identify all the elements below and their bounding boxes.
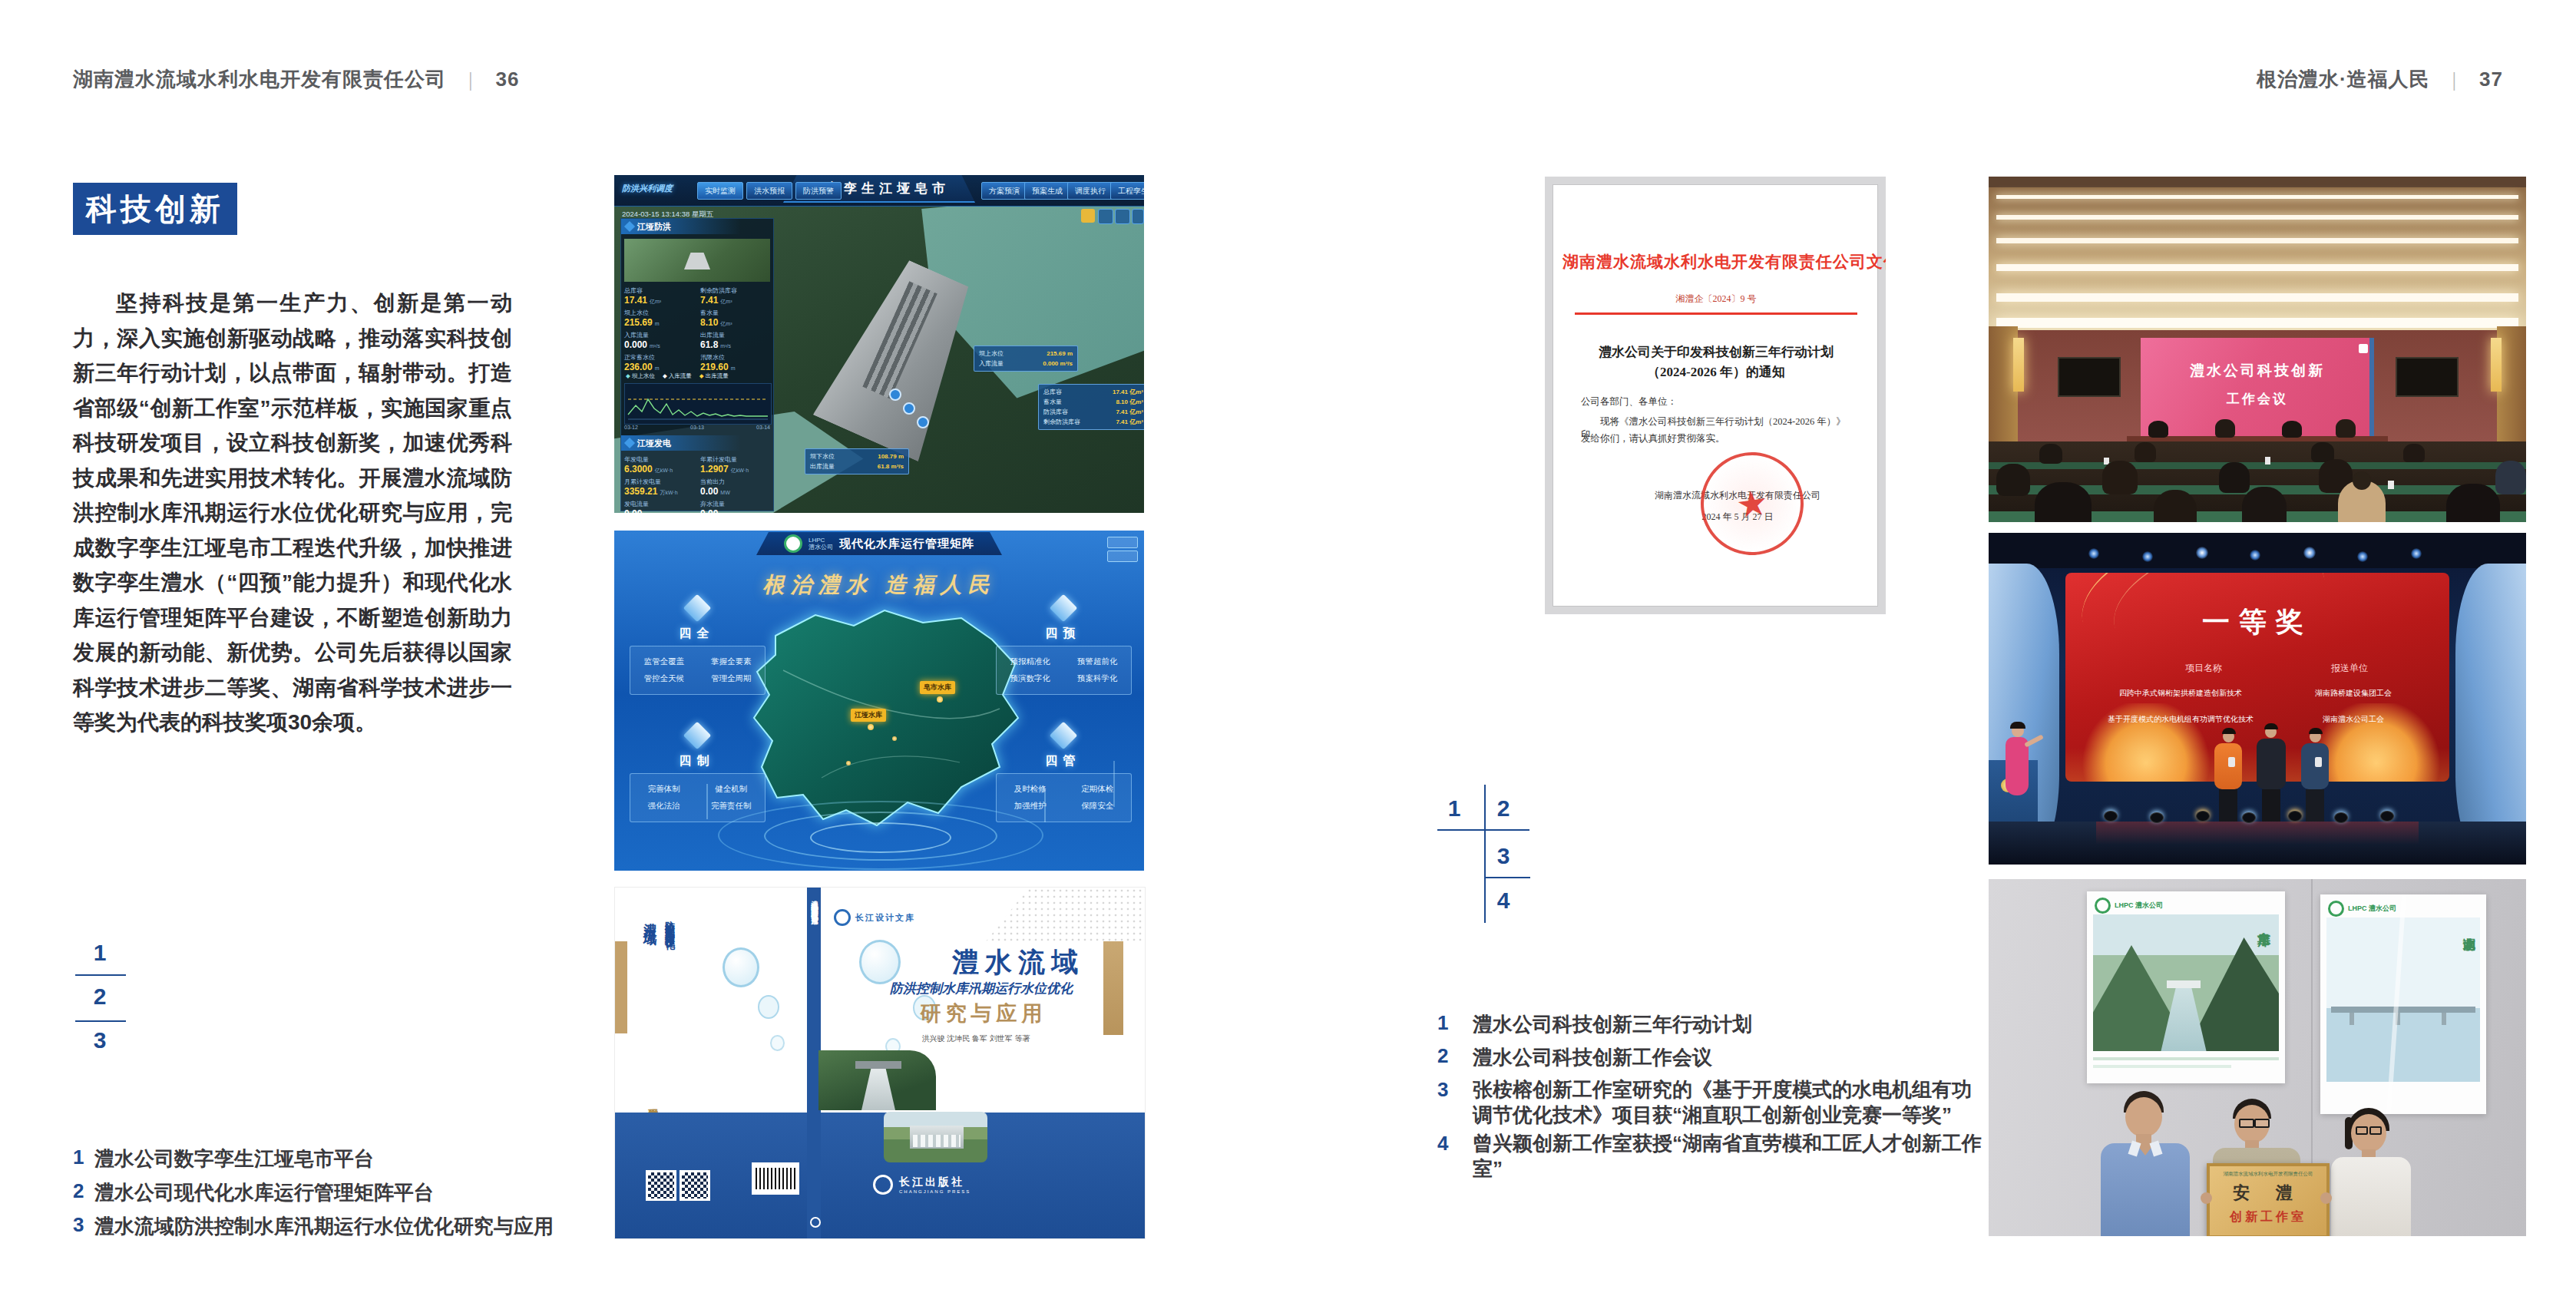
award-title: 一等奖 [2065,603,2449,641]
inset-dam [684,253,710,269]
stage-light-fixture [2380,811,2394,822]
stat-cell: 剩余防洪库容7.41亿m³ [697,285,773,307]
caption-number: 2 [1437,1044,1459,1071]
stat-cell: 年发电量6.3000亿kW·h [621,454,697,476]
winner-hair [2222,728,2236,734]
brochure-spread: 湖南澧水流域水利水电开发有限责任公司 ｜ 36 根治澧水·造福人民 ｜ 37 科… [0,0,2576,1306]
figure-index-3: 3 [1486,843,1520,869]
stat-value: 219.60 [700,362,729,372]
barcode-bars [756,1168,795,1189]
stat-cell: 弃水流量0.00m³/s [697,498,773,513]
innovation-plaque: 湖南澧水流域水利水电开发有限责任公司 安 澧 创新工作室 [2207,1163,2330,1236]
power-panel-header: 江垭发电 [621,435,741,451]
meeting-screen-line1: 澧水公司科技创新 [2141,361,2374,381]
tab-dispatch-execution: 调度执行 [1067,182,1113,200]
award-org-2: 湖南澧水公司工会 [2296,714,2411,725]
attendee-silhouette [2035,482,2092,522]
ceiling [1989,187,2526,330]
presenter-suit [2257,739,2286,789]
publisher-name-en: CHANGJIANG PRESS [899,1189,971,1194]
locate-icon [1115,209,1130,224]
stat-value: 0.00 [700,486,718,497]
panel-item: 管控全天候 [644,673,685,684]
halftone-pattern [984,888,1145,944]
stat-value: 215.69 [624,317,653,328]
stage-light-fixture [2288,811,2302,822]
spotlight [2357,551,2368,562]
figure-index-rule [1484,877,1530,878]
stat-value: 236.00 [624,362,653,372]
stat-cell: 出库流量61.8m³/s [697,329,773,352]
photo-award-ceremony: 一等奖 项目名称 报送单位 四跨中承式钢桁架拱桥建造创新技术 湖南路桥建设集团工… [1989,533,2526,865]
stat-cell: 蓄水量8.10亿m³ [697,307,773,329]
water-bottle [2265,457,2270,465]
water-droplet [723,947,759,987]
photo-official-document: 湖南澧水流域水利水电开发有限责任公司文件 湘澧企〔2024〕9 号 澧水公司关于… [1545,177,1886,614]
wall-sconce-light [2491,338,2502,392]
menu-button [1107,551,1138,562]
man2-right-hand [2320,1192,2332,1204]
qr-code [680,1170,710,1201]
figure-index-1: 1 [83,940,117,966]
matrix-header: LHPC澧水公司 现代化水库运行管理矩阵 [756,532,1002,555]
siquan-panel: 监管全覆盖 掌握全要素 管控全天候 管理全周期 [630,646,766,695]
attendee-silhouette [2102,461,2138,494]
stat-value: 7.41 [700,295,718,306]
x-tick: 03-13 [690,425,704,430]
panelist-silhouette [2336,419,2356,438]
panel-item: 完善体制 [648,784,680,795]
caption-number: 2 [73,1179,94,1206]
seal-star-icon: ★ [1734,481,1771,526]
lhpc-logo-icon [784,534,802,553]
stat-value: 0.000 [624,339,647,350]
panel-item: 预报精准化 [1010,656,1051,667]
award-col-org: 报送单位 [2296,662,2403,675]
caption-number: 3 [1437,1077,1459,1128]
stat-label: 发电流量 [624,500,694,508]
award-col-project: 项目名称 [2150,662,2257,675]
ceiling-light-strip [1996,238,2518,243]
stat-label: 弃水流量 [700,500,770,508]
caption-text: 澧水公司数字孪生江垭皂市平台 [94,1146,374,1172]
lhpc-logo-icon [2095,898,2111,914]
stage-light-fixture [2242,812,2256,823]
window-button [1107,537,1138,548]
tooltip-upstream: 坝上水位215.69 m 入库流量0.000 m³/s [974,346,1078,372]
photo-digital-twin-platform: 数字孪生江垭皂市 防洪兴利调度 实时监测 洪水预报 防洪预警 方案预演 预案生成… [614,175,1144,513]
gate-marker-dot [917,416,929,428]
panel-item: 预警超前化 [1077,656,1118,667]
water-level-chart [624,383,772,425]
spotlight [2142,551,2153,562]
figure-index-3: 3 [83,1027,117,1053]
plaque-subtitle: 创新工作室 [2210,1209,2326,1225]
panelist-silhouette [2215,419,2235,438]
company-name: 湖南澧水流域水利水电开发有限责任公司 [73,66,446,93]
stage-light-fixture [2150,812,2164,823]
stat-unit: m³/s [720,343,731,349]
chart-svg [625,384,771,424]
figure-index-rule [1437,829,1529,831]
stat-unit: m [655,365,660,371]
caption-row: 2 澧水公司科技创新工作会议 [1437,1044,1712,1071]
poster-left: LHPC 澧水公司 皂市水库 [2087,891,2285,1083]
gate-marker-dot [889,388,901,401]
poster-landscape [2093,914,2279,1051]
gorge-spillway [861,1066,895,1110]
stat-unit: m³/s [720,512,731,513]
spine-title: 澧水流域防洪控制水库汛期运行水位优化研究与应用 [809,895,819,1149]
stat-label: 坝上水位 [624,309,694,317]
stat-cell: 月累计发电量3359.21万kW·h [621,476,697,498]
award-org-1: 湖南路桥建设集团工会 [2296,688,2411,699]
tab-plan-generation: 预案生成 [1024,182,1070,200]
book-title-tail: 研究与应用 [868,1000,1099,1027]
panel-item: 监管全覆盖 [644,656,685,667]
layers-icon [1098,209,1113,224]
award-project-2: 基于开度模式的水电机组有功调节优化技术 [2085,714,2277,725]
header-divider: ｜ [461,68,481,92]
caption-row: 3 澧水流域防洪控制水库汛期运行水位优化研究与应用 [73,1213,554,1240]
tooltip-row: 出库流量61.8 m³/s [810,461,904,471]
wall-tv-screen [2396,357,2459,397]
panelist-silhouette [2148,421,2168,438]
panel-item: 预案科学化 [1077,673,1118,684]
panelist-silhouette [2282,421,2302,438]
panel-item: 管理全周期 [711,673,752,684]
tab-project-twin: 工程孪生 [1110,182,1144,200]
page-header-left: 湖南澧水流域水利水电开发有限责任公司 ｜ 36 [73,66,519,93]
meeting-screen-line2: 工作会议 [2141,390,2374,408]
stat-cell: 入库流量0.000m³/s [621,329,697,352]
photo-workshop-plaque: LHPC 澧水公司 皂市水库 LHPC 澧水公司 [1989,879,2526,1236]
twin-mode-label: 防洪兴利调度 [622,183,673,194]
chart-x-ticks: 03-12 03-13 03-14 [624,425,770,430]
photo-book-cover: 澧水流域 防洪控制水库汛期运行水位优化 研究与应用 澧水流域防洪控制水库汛期运行… [614,887,1146,1239]
ceiling-light-strip [1996,215,2518,220]
stat-unit: m [731,365,736,371]
tooltip-capacity: 总库容17.41 亿m³ 蓄水量8.10 亿m³ 防洪库容7.41 亿m³ 剩余… [1038,384,1144,430]
poster-bridge-scene [2326,918,2480,1082]
wall-tv-screen [2058,357,2121,397]
book-title-sub: 防洪控制水库汛期运行水位优化 [839,980,1123,997]
publisher-logo: 长江出版社 CHANGJIANG PRESS [873,1175,971,1195]
flood-stats-grid: 总库容17.41亿m³ 剩余防洪库容7.41亿m³ 坝上水位215.69m 蓄水… [621,285,773,374]
sizhi-title: 四制 [626,753,768,769]
qr-code [646,1170,676,1201]
plaque-org-line: 湖南澧水流域水利水电开发有限责任公司 [2210,1171,2326,1178]
siyu-panel: 预报精准化 预警超前化 预演数字化 预案科学化 [996,646,1132,695]
ceiling-light-strip [1996,264,2518,271]
stat-value: 1.2907 [700,464,729,474]
poster-footer-rule [2093,1057,2279,1060]
figure-index-rule [75,974,126,976]
panel-logo-icon [624,438,635,448]
flood-panel-title: 江垭防洪 [637,221,671,233]
siyu-title: 四预 [992,626,1134,642]
photo-matrix-platform: LHPC澧水公司 现代化水库运行管理矩阵 根治澧水 造福人民 皂市水库 江垭水库… [614,531,1144,871]
panel-item: 预演数字化 [1010,673,1051,684]
chart-legend: ◆ 坝上水位 ◆ 入库流量 ◆ 出库流量 [626,372,729,380]
man1-blue-polo [2101,1143,2190,1236]
water-droplet [859,940,901,984]
spotlight [2303,547,2316,559]
host-hair [2010,722,2025,729]
stat-unit: m [655,321,660,326]
stage-light-fixture [2334,812,2348,823]
stat-label: 年累计发电量 [700,455,770,464]
caption-row: 1 澧水公司科技创新三年行动计划 [1437,1011,1752,1038]
document-salutation: 公司各部门、各单位： [1581,395,1677,408]
spine-publisher-icon [810,1217,821,1228]
poster-logo-text: LHPC 澧水公司 [2115,901,2163,911]
power-panel-title: 江垭发电 [637,438,671,449]
panel-logo-icon [624,221,635,232]
stat-cell: 当前出力0.00MW [697,476,773,498]
flood-panel-header: 江垭防洪 [621,219,741,234]
poster-logo: LHPC 澧水公司 [2095,898,2163,914]
stat-value: 8.10 [700,317,718,328]
water-droplet [770,1035,785,1051]
caption-text: 曾兴颖创新工作室获授“湖南省直劳模和工匠人才创新工作室” [1473,1131,1982,1182]
panel-item: 健全机制 [715,784,747,795]
presenter-hair [2264,723,2278,729]
attendee-silhouette [2135,442,2156,462]
caption-number: 1 [1437,1011,1459,1038]
tab-realtime-monitoring: 实时监测 [697,182,743,200]
panel-item: 强化法治 [648,801,680,812]
series-logo: 长江设计文库 [834,909,915,926]
legend-item: ◆ 坝上水位 [626,372,655,380]
publisher-text-block: 长江出版社 CHANGJIANG PRESS [899,1175,971,1194]
attendee-silhouette [1996,464,2030,496]
poster-left-title: 皂市水库 [2255,922,2273,1037]
spotlight [2411,548,2422,559]
stat-label: 总库容 [624,286,694,295]
ceiling-light-strip [1996,195,2518,199]
official-seal: ★ [1694,445,1810,561]
stat-cell: 发电流量0.00m³/s [621,498,697,513]
stat-cell: 总库容17.41亿m³ [621,285,697,307]
siguan-panel: 及时检修 定期体检 加强维护 保障安全 [996,773,1132,822]
light-pillar [1044,789,1046,822]
panel-item: 加强维护 [1014,801,1047,812]
screen-frame-edge [2369,338,2374,436]
poster-footer-rule [2093,1065,2231,1068]
water-bottle [2388,481,2394,489]
legend-item: ◆ 入库流量 [663,372,692,380]
trophy [2228,757,2235,767]
caption-number: 4 [1437,1131,1459,1182]
polo-collar [2150,1141,2163,1157]
legend-item: ◆ 出库流量 [699,372,729,380]
figure-index-4: 4 [1486,888,1520,914]
stat-value: 3359.21 [624,486,657,497]
document-title-line1: 澧水公司关于印发科技创新三年行动计划 [1553,343,1879,361]
screen-reflection [2096,822,2419,845]
water-droplet [758,995,779,1019]
map-marker-zaoshi: 皂市水库 [920,681,955,694]
marker-glow-dot [868,724,874,730]
x-tick: 03-12 [624,425,638,430]
dam-inset-photo [624,239,770,282]
user-icon [1132,209,1144,224]
tab-scheme-rehearsal: 方案预演 [981,182,1027,200]
back-cover-title: 澧水流域 [641,912,659,1096]
stat-unit: 亿kW·h [655,468,673,473]
bridge-deck [2331,1007,2475,1013]
green-table-row [1989,462,2526,469]
figure-index-rule [1484,785,1486,923]
winner2-hair [2309,728,2323,734]
dam-front-spill [913,1135,961,1147]
page-number-left: 36 [496,68,520,91]
stat-cell: 坝上水位215.69m [621,307,697,329]
figure-index-2: 2 [83,984,117,1010]
tab-flood-forecast: 洪水预报 [746,182,792,200]
marker-glow-dot [846,761,851,765]
dam-front-photo [884,1112,987,1162]
glasses-right-lens [2254,1119,2270,1128]
caption-text: 澧水公司科技创新三年行动计划 [1473,1011,1752,1038]
document-title-line2: （2024-2026 年）的通知 [1553,363,1879,381]
x-tick: 03-14 [756,425,770,430]
stat-unit: m³/s [650,343,660,349]
changjiang-design-logo-icon [834,909,851,926]
gorge-dam-photo [818,1050,936,1110]
stat-unit: 亿m³ [720,299,732,304]
ceiling-edge [1989,177,2526,187]
figure-index-rule [75,1020,126,1022]
panel-item: 掌握全要素 [711,656,752,667]
stat-cell: 年累计发电量1.2907亿kW·h [697,454,773,476]
back-cover-ribbon [615,941,627,1033]
stat-value: 6.3000 [624,464,653,474]
panel-item: 保障安全 [1081,801,1113,812]
book-authors: 洪兴骏 沈坤民 鲁军 刘世军 等著 [845,1033,1106,1044]
figure-index-2: 2 [1486,795,1520,822]
map-marker-jiangya: 江垭水库 [851,709,886,722]
ceiling-light-strip [1996,318,2518,328]
stat-unit: 亿m³ [650,299,661,304]
attendee-silhouette [2039,444,2062,464]
brand-slogan: 根治澧水·造福人民 [2257,66,2430,93]
stat-label: 蓄水量 [700,309,770,317]
siquan-title: 四全 [626,626,768,642]
stat-unit: 亿m³ [720,321,732,326]
lhpc-logo-icon [2328,901,2344,917]
glasses-right-lens [2369,1126,2382,1135]
caption-text: 澧水公司科技创新工作会议 [1473,1044,1712,1071]
document-body-line2: 发给你们，请认真抓好贯彻落实。 [1581,432,1854,445]
stat-unit: 万kW·h [660,490,677,495]
panel-item: 及时检修 [1014,784,1047,795]
man2-left-hand [2201,1192,2212,1204]
poster-right: LHPC 澧水公司 南水北调 [2320,894,2486,1114]
publisher-logo-icon [873,1175,893,1195]
small-dam [2167,980,2201,988]
marker-glow-dot [892,736,897,741]
gate-marker-dot [903,402,915,415]
tooltip-row: 总库容17.41 亿m³ [1043,387,1143,397]
document-red-rule [1575,312,1857,315]
figure-index-1: 1 [1437,795,1471,822]
stat-cell: 汛限水位219.60m [697,352,773,374]
stat-label: 正常蓄水位 [624,353,694,362]
spotlight [2250,550,2260,560]
marker-glow-dot [937,696,943,703]
caption-row: 3 张桉榕创新工作室研究的《基于开度模式的水电机组有功调节优化技术》项目获“湘直… [1437,1077,1982,1128]
barcode [752,1162,799,1195]
glasses-left-lens [2356,1126,2368,1135]
hologram-ring [810,822,951,853]
panel-item: 完善责任制 [711,801,752,812]
caption-text: 澧水流域防洪控制水库汛期运行水位优化研究与应用 [94,1213,554,1240]
plaque-name: 安 澧 [2210,1182,2326,1205]
man1-head [2125,1097,2162,1137]
series-name: 长江设计文库 [855,912,915,924]
spotlight [2196,547,2208,559]
body-paragraph: 坚持科技是第一生产力、创新是第一动力，深入实施创新驱动战略，推动落实科技创新三年… [73,286,512,740]
poster-logo: LHPC 澧水公司 [2328,901,2396,917]
screen-logo-mark [2359,344,2368,353]
award-project-1: 四跨中承式钢桁架拱桥建造创新技术 [2085,688,2277,699]
trophy [2315,757,2322,767]
attendee-silhouette [2446,484,2500,522]
stat-value: 0.00 [624,508,642,513]
stat-value: 61.8 [700,339,718,350]
wall-sconce-light [2013,338,2024,392]
stage-pillar-right [2455,564,2526,865]
book-title-main: 澧水流域 [922,944,1114,980]
caption-text: 张桉榕创新工作室研究的《基于开度模式的水电机组有功调节优化技术》项目获“湘直职工… [1473,1077,1982,1128]
stat-label: 当前出力 [700,478,770,486]
document-paper: 湖南澧水流域水利水电开发有限责任公司文件 湘澧企〔2024〕9 号 澧水公司关于… [1553,184,1878,607]
power-stats-grid: 年发电量6.3000亿kW·h 年累计发电量1.2907亿kW·h 月累计发电量… [621,454,773,513]
spotlight [2088,548,2099,559]
stat-label: 月累计发电量 [624,478,694,486]
bridge-pier [2349,1013,2354,1025]
stat-label: 年发电量 [624,455,694,464]
stat-unit: MW [720,490,729,495]
ceiling-light-strip [1996,293,2518,302]
stage-light-fixture [2104,811,2118,822]
attendee-silhouette [2495,461,2526,494]
stat-cell: 正常蓄水位236.00m [621,352,697,374]
woman-white-tee [2331,1157,2411,1236]
header-divider: ｜ [2445,68,2465,92]
stage-light-fixture [2196,811,2210,822]
poster-logo-text: LHPC 澧水公司 [2348,904,2396,914]
caption-number: 1 [73,1146,94,1172]
document-header: 湖南澧水流域水利水电开发有限责任公司文件 [1562,251,1870,273]
section-title: 科技创新 [73,183,237,235]
stat-unit: 亿kW·h [731,468,749,473]
tooltip-row: 入库流量0.000 m³/s [979,359,1073,369]
attendee-silhouette [2242,487,2287,522]
polo-collar [2128,1141,2141,1157]
tooltip-row: 蓄水量8.10 亿m³ [1043,397,1143,407]
flood-panel: 江垭防洪 总库容17.41亿m³ 剩余防洪库容7.41亿m³ 坝上水位215.6… [620,218,774,511]
stat-value: 0.00 [700,508,718,513]
tab-flood-warning: 防洪预警 [795,182,842,200]
stat-label: 出库流量 [700,331,770,339]
sizhi-panel: 完善体制 健全机制 强化法治 完善责任制 [630,773,766,822]
page-header-right: 根治澧水·造福人民 ｜ 37 [2257,66,2503,93]
tooltip-row: 坝上水位215.69 m [979,349,1073,359]
page-number-right: 37 [2479,68,2503,91]
